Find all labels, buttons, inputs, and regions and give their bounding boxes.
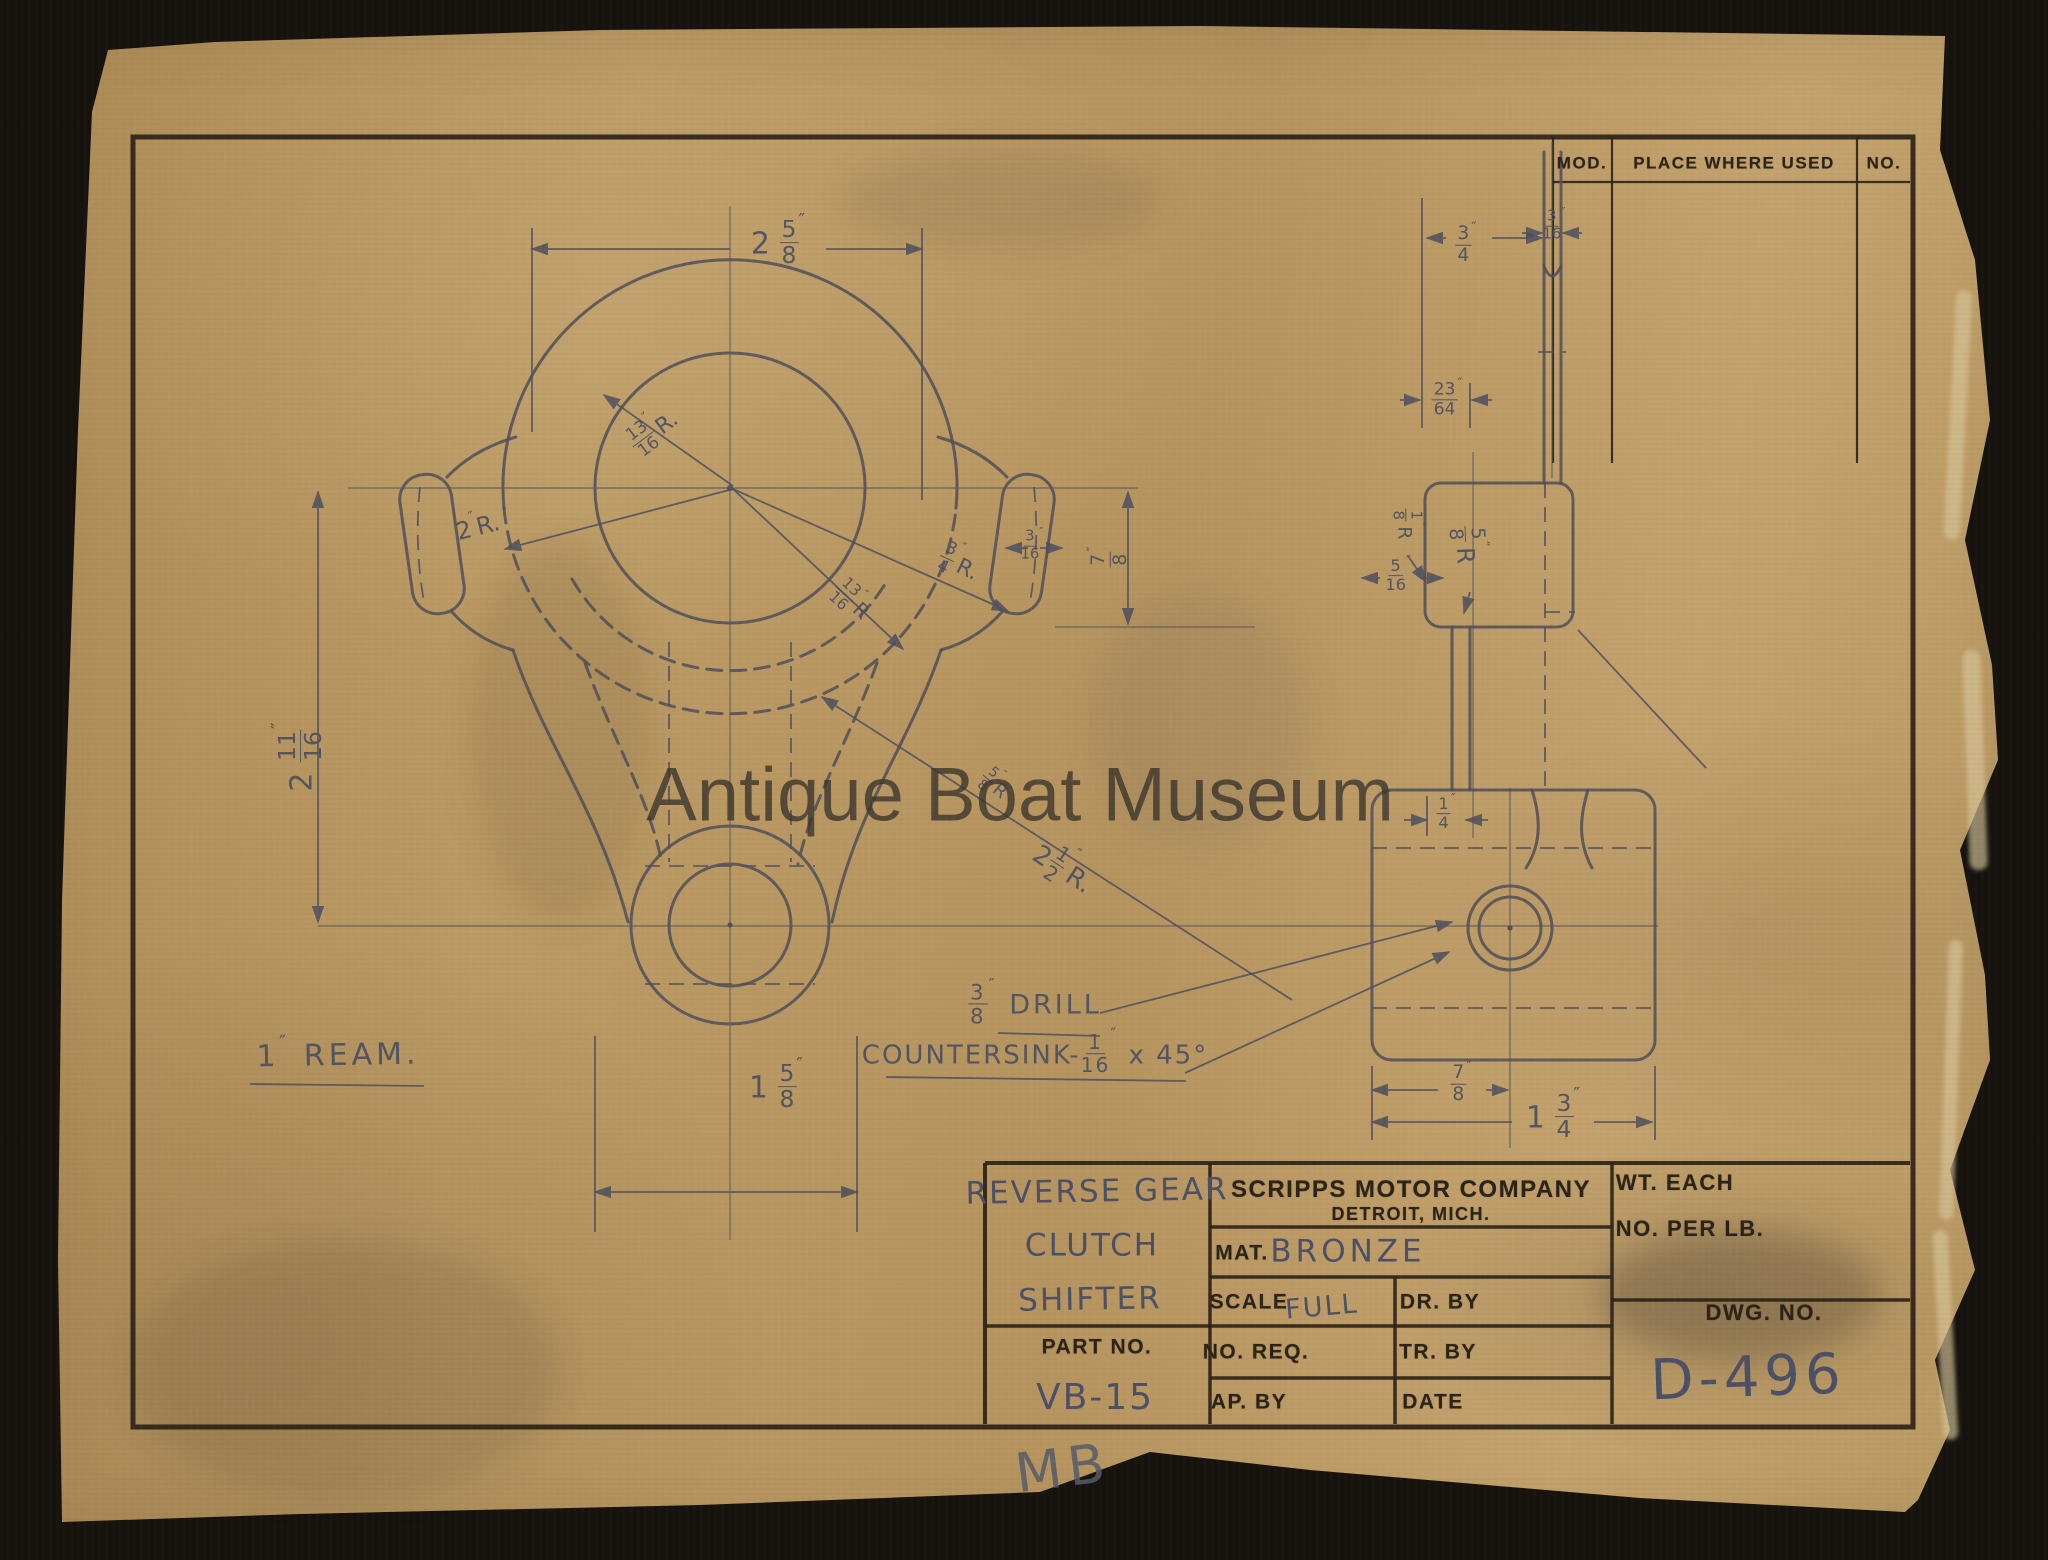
scale-value: FULL xyxy=(1284,1290,1359,1323)
dim-overall-width: 2 58″ xyxy=(751,220,805,270)
dim-outer-radius: 2″R. xyxy=(454,510,503,544)
tr-by-label: TR. BY xyxy=(1399,1342,1477,1363)
mod-table-header-no: NO. xyxy=(1867,155,1902,172)
museum-watermark: Antique Boat Museum xyxy=(646,752,1394,839)
part-no-label: PART NO. xyxy=(1042,1337,1153,1358)
wt-each-label: WT. EACH xyxy=(1616,1172,1734,1194)
company-city: DETROIT, MICH. xyxy=(1332,1205,1491,1223)
dim-yoke-radius: 212″R. xyxy=(1023,834,1101,906)
dim-ear-offset: 78″ xyxy=(1092,546,1132,567)
dim-side-fillet-b: 58″R xyxy=(1443,525,1485,564)
dim-side-top-width: 34″ xyxy=(1455,227,1476,267)
note-countersink: COUNTERSINK-116″ x 45° xyxy=(862,1034,1208,1078)
mod-table-header-mod: MOD. xyxy=(1557,155,1607,172)
part-name-line-2: CLUTCH xyxy=(1025,1231,1159,1262)
dim-bore-radius: 1316″R. xyxy=(623,402,687,463)
dim-side-block-offset: 516″ xyxy=(1385,560,1411,596)
no-per-lb-label: NO. PER LB. xyxy=(1616,1218,1765,1240)
dwg-no-value: D-496 xyxy=(1649,1347,1846,1410)
dwg-no-label: DWG. NO. xyxy=(1705,1302,1822,1324)
dr-by-label: DR. BY xyxy=(1400,1292,1480,1313)
dim-side-finger: 14″ xyxy=(1436,798,1455,834)
dim-inner-radius: 1316″R xyxy=(823,575,877,629)
ap-by-label: AP. BY xyxy=(1211,1392,1287,1413)
pencil-initials: MB xyxy=(1012,1431,1115,1505)
no-req-label: NO. REQ. xyxy=(1203,1342,1310,1363)
date-label: DATE xyxy=(1402,1392,1464,1413)
scanned-blueprint-page: { "scan": { "museum_watermark": "Antique… xyxy=(0,0,2048,1560)
dim-side-plate-width: 1 34″ xyxy=(1526,1094,1580,1144)
dim-side-slot: 2364″ xyxy=(1432,383,1463,420)
dim-side-fillet-a: 18″R xyxy=(1388,509,1421,540)
scale-label: SCALE xyxy=(1210,1292,1289,1313)
dim-fillet-radius: 34″R. xyxy=(931,540,984,591)
mod-table-header-place: PLACE WHERE USED xyxy=(1633,155,1835,172)
dim-center-distance: 2 1116″ xyxy=(278,722,328,791)
company-name: SCRIPPS MOTOR COMPANY xyxy=(1231,1178,1591,1202)
part-name-line-1: REVERSE GEAR xyxy=(965,1174,1228,1210)
mat-label: MAT. xyxy=(1215,1243,1268,1264)
dim-side-hole-offset: 78″ xyxy=(1450,1066,1471,1106)
dim-ear-width: 316″ xyxy=(1020,532,1043,565)
note-drill: 38″ DRILL xyxy=(968,983,1102,1028)
part-no-value: VB-15 xyxy=(1036,1380,1154,1416)
mat-value: BRONZE xyxy=(1270,1237,1425,1268)
note-ream: 1″ REAM. xyxy=(256,1040,420,1073)
dim-hub-width: 1 58″ xyxy=(749,1064,803,1114)
part-name-line-3: SHIFTER xyxy=(1018,1283,1162,1316)
dim-side-stem-width: 316″ xyxy=(1542,212,1565,245)
